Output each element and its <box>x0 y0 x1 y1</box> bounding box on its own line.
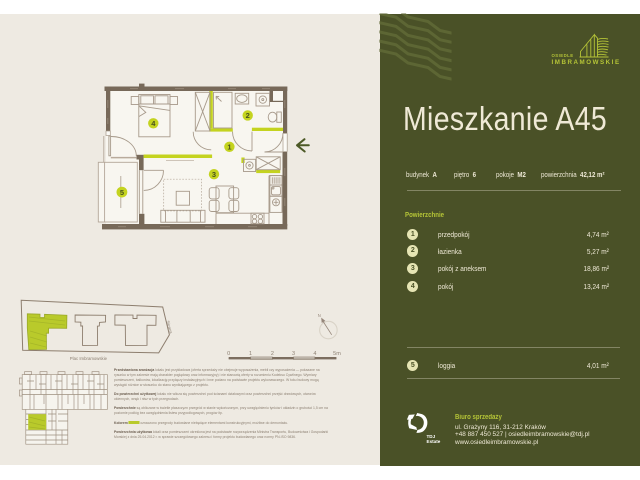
svg-text:5m: 5m <box>333 351 341 357</box>
svg-text:3: 3 <box>212 170 216 179</box>
svg-text:2: 2 <box>246 111 250 120</box>
svg-text:2: 2 <box>271 351 274 357</box>
svg-text:3: 3 <box>292 351 295 357</box>
svg-text:4: 4 <box>313 351 316 357</box>
svg-text:N: N <box>318 313 321 318</box>
svg-text:Plac Imbramowskie: Plac Imbramowskie <box>70 356 108 361</box>
svg-text:1: 1 <box>227 143 231 152</box>
svg-text:0: 0 <box>227 351 230 357</box>
svg-text:1: 1 <box>249 351 252 357</box>
svg-text:5: 5 <box>120 188 124 197</box>
svg-text:Siewna: Siewna <box>166 320 174 335</box>
